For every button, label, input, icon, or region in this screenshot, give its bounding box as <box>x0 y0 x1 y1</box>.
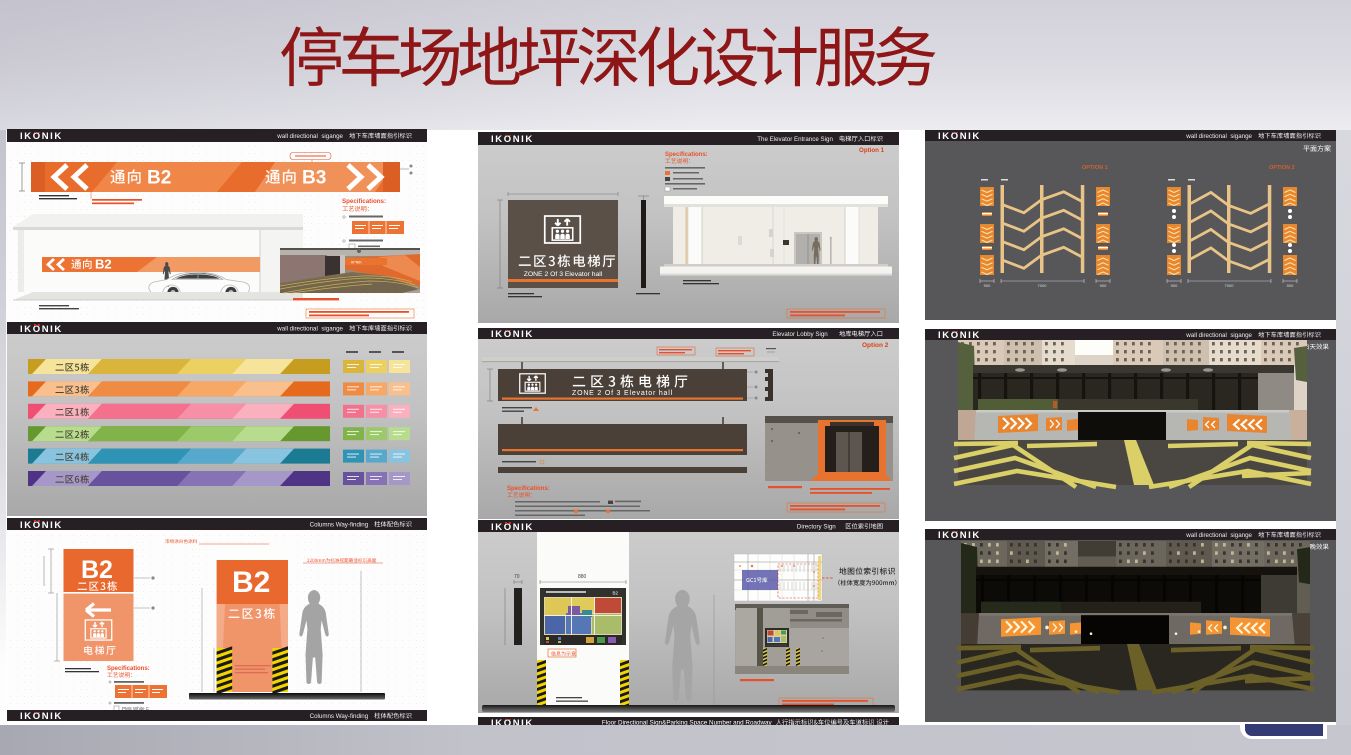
svg-text:Specifications:: Specifications: <box>107 666 150 672</box>
svg-text:900: 900 <box>984 283 991 288</box>
svg-text:B2: B2 <box>612 591 618 596</box>
svg-text:7000: 7000 <box>1225 283 1235 288</box>
svg-text:Columns Way-finding: Columns Way-finding <box>310 521 369 528</box>
svg-text:B2: B2 <box>95 257 112 272</box>
svg-text:900: 900 <box>1287 283 1294 288</box>
svg-text:OPTION 1: OPTION 1 <box>1082 165 1108 171</box>
svg-text:Specifications:: Specifications: <box>507 486 550 492</box>
svg-text:900: 900 <box>1100 283 1107 288</box>
svg-text:70: 70 <box>514 574 520 580</box>
svg-text:7000: 7000 <box>1038 283 1048 288</box>
svg-text:wall directional sigange: wall directional sigange <box>276 325 343 332</box>
svg-text:B3: B3 <box>302 168 326 189</box>
svg-text:Directory Sign: Directory Sign <box>797 523 839 530</box>
svg-text:wall directional sigange: wall directional sigange <box>1185 133 1252 140</box>
svg-text:Elevator Lobby Sign: Elevator Lobby Sign <box>772 331 833 338</box>
svg-text:Option 2: Option 2 <box>862 342 889 349</box>
svg-text:B2: B2 <box>81 556 113 584</box>
svg-text:Columns Way-finding: Columns Way-finding <box>310 713 369 720</box>
svg-text:Option 1: Option 1 <box>859 147 885 154</box>
svg-text:900: 900 <box>1171 283 1178 288</box>
svg-text:IK*NIK: IK*NIK <box>351 261 362 265</box>
svg-text:B2: B2 <box>147 168 171 189</box>
svg-text:The Elevator Entrance Sign: The Elevator Entrance Sign <box>757 136 833 143</box>
svg-text:Specifications:: Specifications: <box>665 152 708 158</box>
svg-text:wall directional sigange: wall directional sigange <box>1185 332 1252 339</box>
svg-text:wall directional sigange: wall directional sigange <box>276 133 343 140</box>
svg-text:OPTION 2: OPTION 2 <box>1269 165 1295 171</box>
svg-text:ZONE 2 Of 3 Elevator hall: ZONE 2 Of 3 Elevator hall <box>524 271 603 278</box>
svg-text:B2: B2 <box>232 566 270 599</box>
svg-text:ZONE 2 Of 3 Elevator hall: ZONE 2 Of 3 Elevator hall <box>572 390 673 397</box>
svg-text:wall directional sigange: wall directional sigange <box>1185 532 1252 539</box>
svg-text:Specifications:: Specifications: <box>342 198 386 205</box>
svg-text:880: 880 <box>578 574 587 580</box>
